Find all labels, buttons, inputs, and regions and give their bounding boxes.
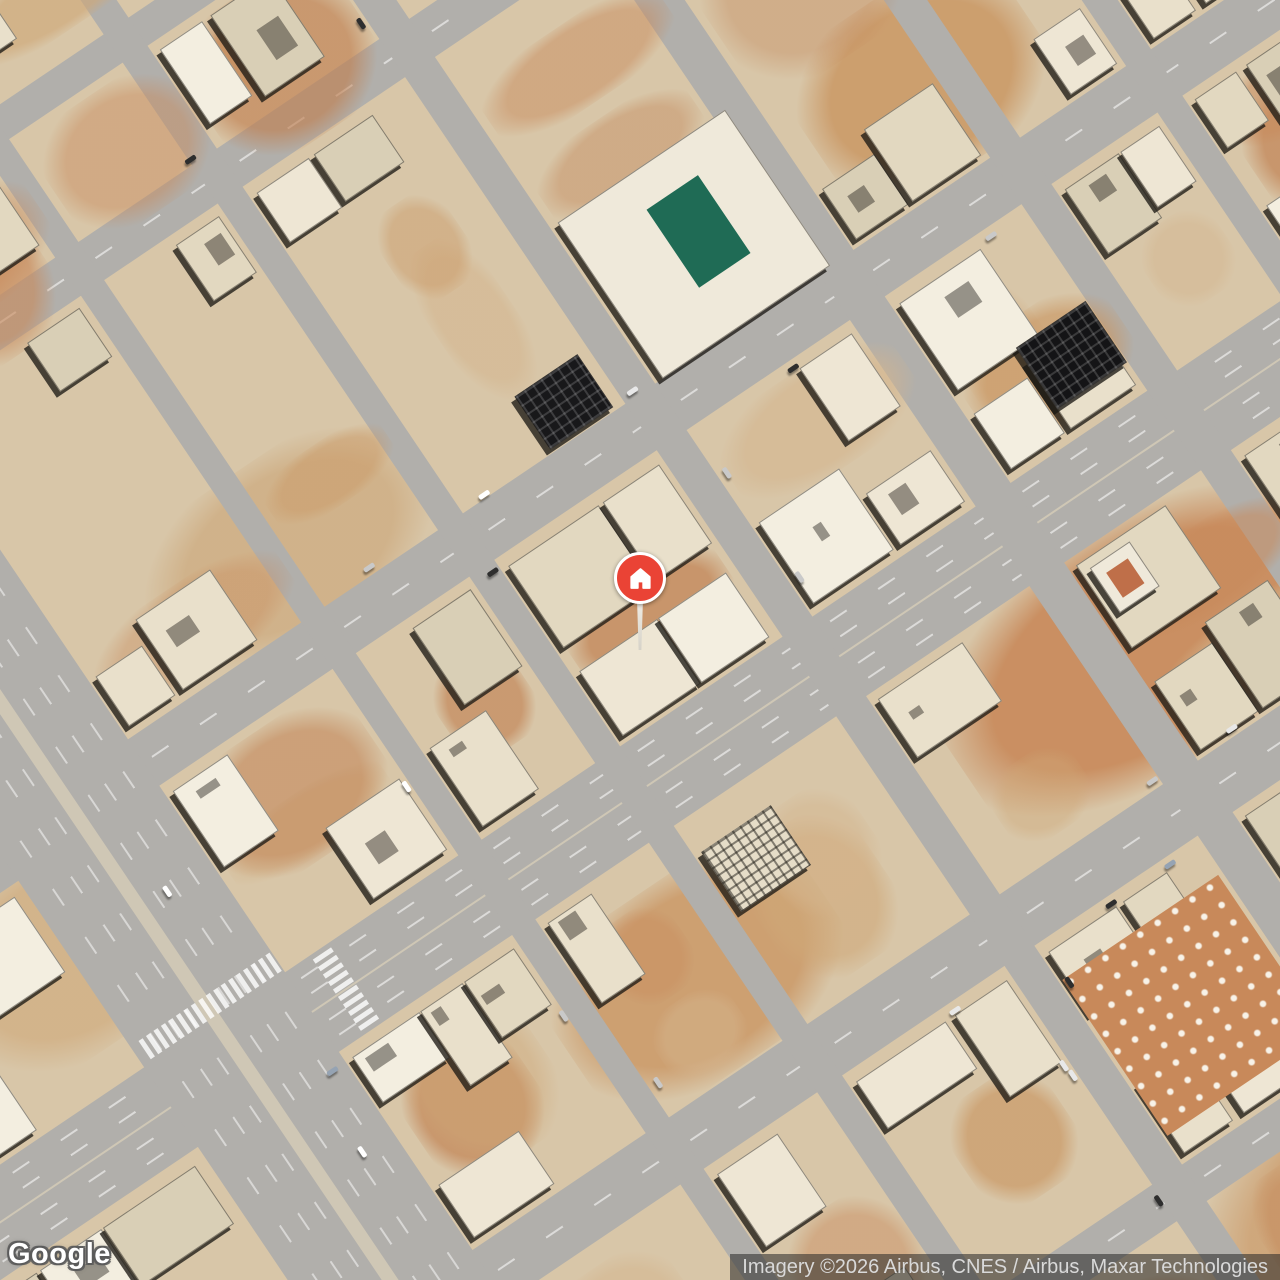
car (1164, 859, 1177, 870)
map-viewport[interactable]: Google Imagery ©2026 Airbus, CNES / Airb… (0, 0, 1280, 1280)
building-courtyard (431, 1006, 450, 1026)
building-courtyard (1088, 174, 1117, 202)
building-courtyard (204, 233, 235, 265)
building-courtyard (480, 983, 505, 1005)
building-courtyard (256, 16, 298, 60)
building-courtyard (1179, 689, 1197, 707)
building-courtyard (365, 830, 399, 865)
imagery-attribution: Imagery ©2026 Airbus, CNES / Airbus, Max… (730, 1254, 1280, 1280)
map-marker[interactable] (614, 552, 666, 604)
building-courtyard (1267, 61, 1280, 103)
google-logo[interactable]: Google (8, 1238, 111, 1271)
building-courtyard (944, 281, 983, 318)
building-courtyard (812, 522, 830, 542)
home-icon (627, 565, 654, 592)
landmark-part (647, 175, 751, 288)
building-courtyard (196, 779, 220, 799)
building-courtyard (908, 705, 924, 720)
marker-circle (614, 552, 666, 604)
building-courtyard (557, 910, 588, 941)
building-courtyard (449, 741, 467, 757)
building-courtyard (847, 185, 875, 214)
building-courtyard (888, 483, 919, 515)
landmark-part (1106, 558, 1144, 597)
car (985, 231, 998, 242)
building-courtyard (364, 1043, 397, 1073)
building-courtyard (1239, 603, 1262, 626)
building-courtyard (1066, 35, 1096, 66)
building-courtyard (166, 615, 200, 647)
